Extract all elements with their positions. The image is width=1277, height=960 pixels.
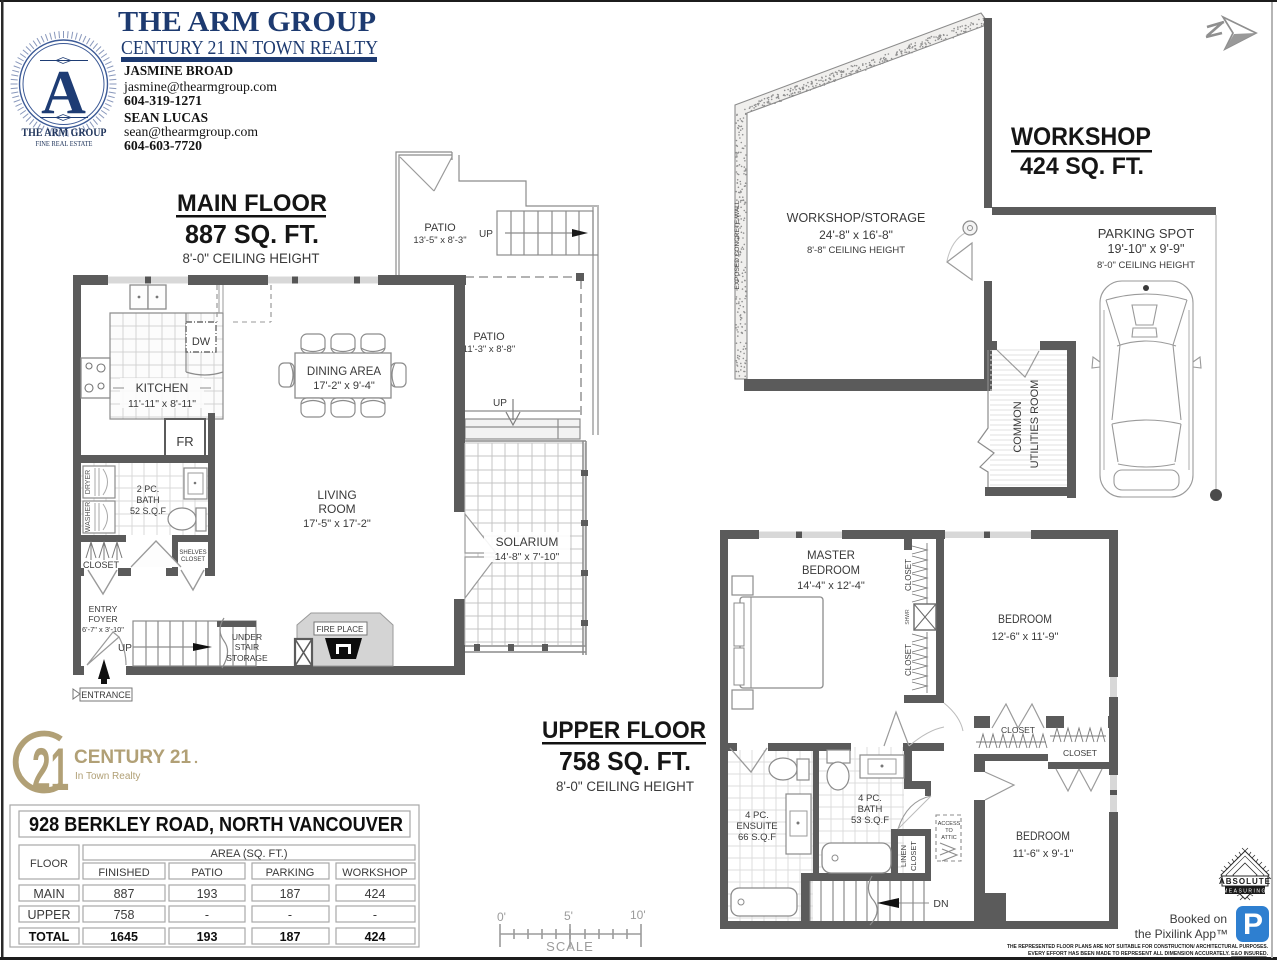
svg-text:10': 10' — [630, 908, 646, 922]
svg-text:4 PC.: 4 PC. — [858, 793, 882, 804]
svg-text:14'-4" x 12'-4": 14'-4" x 12'-4" — [797, 580, 865, 592]
svg-text:BEDROOM: BEDROOM — [1016, 829, 1070, 843]
svg-text:UPPER FLOOR: UPPER FLOOR — [542, 717, 706, 744]
svg-text:187: 187 — [280, 887, 301, 901]
svg-text:MASTER: MASTER — [807, 548, 855, 562]
svg-text:928 BERKLEY ROAD, NORTH VANCOU: 928 BERKLEY ROAD, NORTH VANCOUVER — [29, 813, 403, 836]
svg-text:COMMON: COMMON — [1012, 401, 1024, 452]
svg-text:887 SQ. FT.: 887 SQ. FT. — [185, 221, 319, 249]
svg-text:24'-8" x 16'-8": 24'-8" x 16'-8" — [819, 228, 893, 242]
svg-text:PATIO: PATIO — [473, 331, 505, 343]
svg-text:DRYER: DRYER — [85, 470, 92, 494]
svg-text:CLOSET: CLOSET — [181, 557, 205, 563]
svg-text:53 S.Q.F: 53 S.Q.F — [851, 815, 889, 826]
svg-text:KITCHEN: KITCHEN — [136, 381, 189, 395]
svg-text:BATH: BATH — [858, 804, 883, 815]
svg-text:FR: FR — [176, 434, 193, 449]
svg-text:P: P — [1243, 908, 1263, 941]
svg-text:CLOSET: CLOSET — [83, 560, 120, 570]
svg-text:MAIN: MAIN — [33, 887, 64, 901]
svg-text:66 S.Q.F: 66 S.Q.F — [738, 832, 776, 843]
svg-text:STORAGE: STORAGE — [226, 653, 268, 663]
svg-text:STAIR: STAIR — [235, 642, 259, 652]
svg-text:Booked on: Booked on — [1170, 912, 1227, 926]
svg-text:PATIO: PATIO — [424, 222, 456, 234]
svg-text:FINE REAL ESTATE: FINE REAL ESTATE — [36, 140, 93, 148]
svg-text:PARKING: PARKING — [266, 867, 315, 879]
svg-text:CENTURY 21: CENTURY 21 — [74, 747, 191, 768]
svg-text:UP: UP — [493, 398, 507, 409]
svg-text:ABSOLUTE: ABSOLUTE — [1219, 877, 1271, 886]
svg-text:MAIN FLOOR: MAIN FLOOR — [177, 190, 327, 217]
svg-text:UP: UP — [118, 643, 132, 654]
svg-text:DW: DW — [192, 336, 211, 348]
svg-text:WORKSHOP: WORKSHOP — [1011, 123, 1151, 151]
svg-text:WORKSHOP: WORKSHOP — [342, 867, 407, 879]
svg-text:FINISHED: FINISHED — [98, 867, 149, 879]
svg-text:11'-6" x 9'-1": 11'-6" x 9'-1" — [1013, 848, 1074, 860]
svg-text:TO: TO — [945, 828, 953, 834]
svg-text:0': 0' — [497, 910, 506, 924]
svg-text:1645: 1645 — [110, 930, 138, 944]
svg-text:SEAN LUCAS: SEAN LUCAS — [124, 110, 208, 125]
svg-text:In Town Realty: In Town Realty — [75, 771, 140, 782]
svg-text:SHWR: SHWR — [905, 609, 911, 625]
svg-text:UNDER: UNDER — [232, 632, 262, 642]
svg-text:8'-0" CEILING HEIGHT: 8'-0" CEILING HEIGHT — [1097, 260, 1195, 271]
svg-text:8'-0" CEILING HEIGHT: 8'-0" CEILING HEIGHT — [183, 251, 320, 266]
svg-text:LIVING: LIVING — [317, 488, 356, 502]
svg-text:EVERY EFFORT HAS BEEN MADE TO: EVERY EFFORT HAS BEEN MADE TO REPRESENT … — [1028, 951, 1268, 957]
svg-text:WORKSHOP/STORAGE: WORKSHOP/STORAGE — [787, 211, 926, 225]
svg-text:11'-3" x 8'-8": 11'-3" x 8'-8" — [463, 344, 515, 355]
svg-text:11'-11" x 8'-11": 11'-11" x 8'-11" — [128, 398, 196, 410]
svg-text:52 S.Q.F: 52 S.Q.F — [130, 506, 167, 516]
svg-text:SHELVES: SHELVES — [179, 550, 206, 556]
svg-text:CLOSET: CLOSET — [1063, 748, 1097, 758]
svg-text:AREA (SQ. FT.): AREA (SQ. FT.) — [210, 848, 287, 860]
svg-text:FOYER: FOYER — [88, 614, 117, 624]
svg-text:WASHER: WASHER — [85, 502, 92, 532]
svg-text:PATIO: PATIO — [191, 867, 223, 879]
svg-text:CLOSET: CLOSET — [1001, 725, 1035, 735]
svg-text:UPPER: UPPER — [27, 908, 70, 922]
svg-text:ENTRY: ENTRY — [89, 604, 118, 614]
svg-text:BEDROOM: BEDROOM — [998, 612, 1052, 626]
svg-text:THE ARM GROUP: THE ARM GROUP — [118, 6, 376, 38]
svg-text:604-603-7720: 604-603-7720 — [124, 138, 202, 153]
svg-text:ACCESS: ACCESS — [938, 821, 961, 827]
svg-text:19'-10" x 9'-9": 19'-10" x 9'-9" — [1108, 242, 1185, 256]
svg-text:JASMINE BROAD: JASMINE BROAD — [124, 63, 233, 78]
svg-text:424: 424 — [365, 887, 386, 901]
svg-text:UP: UP — [479, 229, 493, 240]
svg-text:604-319-1271: 604-319-1271 — [124, 93, 202, 108]
svg-text:ATTIC: ATTIC — [941, 835, 957, 841]
svg-text:5': 5' — [564, 909, 573, 923]
svg-text:THE REPRESENTED FLOOR PLANS AR: THE REPRESENTED FLOOR PLANS ARE NOT SUIT… — [1007, 944, 1268, 950]
svg-text:6'-7" x 3'-10": 6'-7" x 3'-10" — [82, 625, 124, 634]
svg-text:8'-0" CEILING HEIGHT: 8'-0" CEILING HEIGHT — [556, 779, 694, 794]
svg-text:UTILITIES ROOM: UTILITIES ROOM — [1029, 380, 1041, 469]
svg-text:ENTRANCE: ENTRANCE — [81, 690, 131, 700]
svg-text:8'-8" CEILING HEIGHT: 8'-8" CEILING HEIGHT — [807, 245, 905, 256]
svg-text:ENSUITE: ENSUITE — [736, 821, 777, 832]
svg-text:14'-8" x 7'-10": 14'-8" x 7'-10" — [495, 551, 560, 563]
svg-text:-: - — [288, 908, 292, 922]
svg-text:424 SQ. FT.: 424 SQ. FT. — [1020, 153, 1144, 180]
svg-text:SCALE: SCALE — [546, 939, 594, 954]
svg-text:21: 21 — [32, 736, 69, 803]
svg-text:DINING AREA: DINING AREA — [307, 366, 381, 378]
svg-text:17'-5" x 17'-2": 17'-5" x 17'-2" — [303, 518, 371, 530]
svg-text:2 PC.: 2 PC. — [137, 484, 160, 494]
svg-text:BEDROOM: BEDROOM — [802, 563, 860, 577]
svg-text:758: 758 — [114, 908, 135, 922]
svg-text:758 SQ. FT.: 758 SQ. FT. — [559, 748, 691, 776]
svg-text:CLOSET: CLOSET — [904, 559, 913, 591]
svg-text:PARKING SPOT: PARKING SPOT — [1098, 226, 1195, 241]
svg-text:193: 193 — [197, 887, 218, 901]
svg-text:A: A — [41, 59, 86, 127]
svg-text:887: 887 — [114, 887, 135, 901]
svg-text:ROOM: ROOM — [318, 502, 355, 516]
svg-text:13'-5" x 8'-3": 13'-5" x 8'-3" — [413, 235, 466, 246]
svg-text:THE ARM GROUP: THE ARM GROUP — [22, 125, 107, 139]
svg-text:CENTURY 21 IN TOWN REALTY: CENTURY 21 IN TOWN REALTY — [121, 37, 378, 59]
svg-text:TOTAL: TOTAL — [29, 930, 70, 944]
svg-text:BATH: BATH — [136, 495, 159, 505]
svg-text:-: - — [205, 908, 209, 922]
svg-text:424: 424 — [365, 930, 386, 944]
svg-text:the Pixilink App™: the Pixilink App™ — [1135, 927, 1228, 941]
svg-text:CLOSET: CLOSET — [904, 644, 913, 676]
svg-text:12'-6" x 11'-9": 12'-6" x 11'-9" — [992, 631, 1059, 643]
svg-text:193: 193 — [197, 930, 218, 944]
svg-text:SOLARIUM: SOLARIUM — [496, 535, 559, 549]
svg-text:CLOSET: CLOSET — [909, 841, 918, 871]
svg-text:EXPOSED CONCRETE WALL: EXPOSED CONCRETE WALL — [734, 200, 741, 289]
svg-text:4 PC.: 4 PC. — [745, 810, 769, 821]
svg-text:MEASURING: MEASURING — [1223, 889, 1267, 895]
svg-text:LINEN: LINEN — [899, 845, 908, 867]
svg-text:FLOOR: FLOOR — [30, 858, 68, 870]
svg-text:187: 187 — [280, 930, 301, 944]
svg-text:DN: DN — [933, 898, 948, 910]
svg-text:17'-2" x 9'-4": 17'-2" x 9'-4" — [313, 380, 375, 392]
svg-text:FIRE PLACE: FIRE PLACE — [317, 625, 364, 634]
svg-text:-: - — [373, 908, 377, 922]
